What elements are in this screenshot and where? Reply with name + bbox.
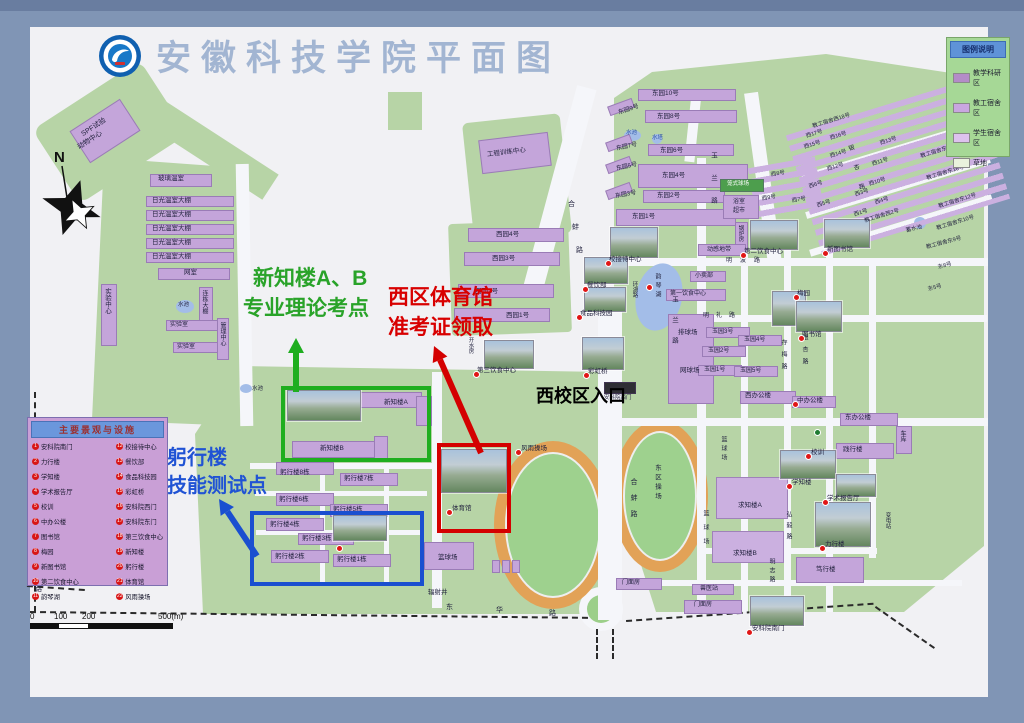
map-label: 学知楼	[792, 480, 812, 487]
photo-thumbnail	[484, 340, 534, 369]
facility-item: 7图书馆	[32, 532, 79, 541]
map-label: 合	[568, 201, 575, 208]
boundary-dashed-road	[612, 629, 614, 659]
poi-marker	[792, 401, 799, 408]
facility-label: 第三饮食中心	[125, 532, 163, 541]
facility-label: 梅园	[41, 547, 54, 556]
map-label: 东区操场	[653, 464, 660, 502]
map-label: 东园1号	[632, 214, 655, 221]
facility-label: 餐饮部	[125, 457, 144, 466]
map-label: 学术报告厅	[827, 496, 860, 503]
facility-number-badge: 16	[116, 503, 123, 510]
map-label: 门面房	[622, 580, 640, 586]
facility-item: 16安科院西门	[116, 502, 163, 511]
poi-marker	[819, 545, 826, 552]
facility-label: 第二饮食中心	[41, 577, 79, 586]
map-title-bar: 安徽科技学院平面图	[98, 30, 561, 81]
map-label: 存梅路	[780, 339, 786, 375]
poi-marker	[814, 429, 821, 436]
facilities-title: 主要景观与设施	[31, 421, 164, 438]
map-label: 网球场	[680, 368, 700, 375]
facility-number-badge: 4	[32, 488, 39, 495]
facility-number-badge: 9	[32, 563, 39, 570]
facility-label: 安科院西门	[125, 502, 156, 511]
scale-bar: 0 100 200 500(m)	[30, 612, 173, 629]
scale-tick-end: 500(m)	[158, 612, 183, 621]
legend-label: 教学科研区	[973, 68, 1006, 88]
map-label: 校接待中心	[609, 257, 642, 264]
facility-item: 5校训	[32, 502, 79, 511]
map-label: 东园10号	[652, 91, 679, 98]
road	[620, 418, 988, 426]
facility-item: 13餐饮部	[116, 457, 163, 466]
map-label: 餐饮部	[587, 283, 607, 290]
map-label: 路	[576, 247, 583, 254]
facility-number-badge: 11	[32, 593, 39, 600]
map-label: 玉园1号	[704, 367, 725, 373]
poi-marker	[583, 372, 590, 379]
map-label: 第二饮食中心	[744, 249, 783, 256]
annotation-blue-line1: 躬行楼	[167, 444, 267, 472]
poi-marker	[646, 284, 653, 291]
map-label: 第一饮食中心	[670, 291, 706, 297]
page-title: 安徽科技学院平面图	[156, 30, 561, 81]
road	[620, 258, 988, 266]
facility-label: 风雨操场	[125, 592, 150, 601]
map-label: 日光温室大棚	[152, 254, 191, 261]
legend-swatch	[953, 103, 970, 113]
poi-marker	[746, 629, 753, 636]
map-label: 小卖部	[695, 273, 713, 279]
facility-item: 19新知楼	[116, 547, 163, 556]
map-label: 锅炉房	[737, 225, 743, 242]
map-label: 明志路	[768, 558, 774, 585]
map-label: 日光温室大棚	[152, 198, 191, 205]
university-logo	[98, 34, 142, 78]
facility-number-badge: 13	[116, 458, 123, 465]
legend-swatch	[953, 158, 970, 168]
photo-thumbnail	[796, 301, 842, 332]
facility-item: 10第二饮食中心	[32, 577, 79, 586]
gongxing-highlight-box	[250, 511, 424, 586]
map-label: 门面房	[694, 602, 712, 608]
map-label: 中办公楼	[797, 398, 823, 405]
map-label: 水池	[178, 303, 189, 309]
legend-item: 教工宿舍区	[950, 98, 1006, 118]
annotation-green-line2: 专业理论考点	[243, 294, 369, 324]
map-label: 连栋大棚	[201, 290, 207, 314]
facility-item: 17安科院东门	[116, 517, 163, 526]
facility-number-badge: 1	[32, 443, 39, 450]
legend-label: 学生宿舍区	[973, 128, 1006, 148]
facility-item: 3学知楼	[32, 472, 79, 481]
map-label: 风雨操场	[521, 446, 547, 453]
map-label: 日光温室大棚	[152, 226, 191, 233]
poi-marker	[822, 250, 829, 257]
map-label: 第三饮食中心	[477, 368, 516, 375]
map-label: 玉园3号	[712, 329, 733, 335]
facility-number-badge: 22	[116, 593, 123, 600]
map-label: 明礼路	[703, 313, 742, 319]
map-label: 合蚌路	[630, 478, 637, 526]
map-label: 兽医站	[700, 586, 718, 592]
poi-marker	[576, 314, 583, 321]
poi-marker	[605, 260, 612, 267]
map-label: 安科院南门	[752, 626, 785, 633]
svg-text:N: N	[54, 149, 65, 166]
facility-item: 1安科院南门	[32, 442, 79, 451]
map-label: 环湖路	[631, 281, 637, 298]
facility-label: 图书馆	[41, 532, 60, 541]
photo-thumbnail	[750, 220, 798, 250]
facility-item: 18第三饮食中心	[116, 532, 163, 541]
facility-item: 4学术报告厅	[32, 487, 79, 496]
facility-item: 11韵琴湖	[32, 592, 79, 601]
map-label: 水池	[252, 387, 263, 393]
facility-item: 21体育馆	[116, 577, 163, 586]
facility-item: 20躬行楼	[116, 562, 163, 571]
running-track	[494, 441, 612, 609]
building	[502, 560, 510, 573]
map-label: 动感地带	[707, 247, 731, 253]
facility-item: 6中办公楼	[32, 517, 79, 526]
facility-number-badge: 19	[116, 548, 123, 555]
facility-item: 2力行楼	[32, 457, 79, 466]
map-label: 玉兰路	[670, 296, 677, 358]
facility-label: 安科院南门	[41, 442, 72, 451]
map-label: 躬行楼6栋	[279, 497, 309, 504]
map-legend: 图例说明 教学科研区教工宿舍区学生宿舍区草地	[946, 37, 1010, 157]
facility-label: 新知楼	[125, 547, 144, 556]
map-label: 东园8号	[657, 114, 680, 121]
facility-item: 9新图书馆	[32, 562, 79, 571]
map-label: 日光温室大棚	[152, 240, 191, 247]
facility-item: 12校接待中心	[116, 442, 163, 451]
map-label: 躬行楼7栋	[344, 476, 374, 483]
map-label: 路	[549, 610, 556, 617]
facility-number-badge: 5	[32, 503, 39, 510]
building	[684, 600, 742, 614]
map-label: 求知楼B	[733, 551, 757, 558]
map-label: 东园2号	[657, 193, 680, 200]
map-label: 东园6号	[660, 148, 683, 155]
legend-label: 草地	[973, 158, 987, 168]
annotation-blue: 躬行楼 技能测试点	[167, 444, 267, 500]
facility-label: 韵琴湖	[41, 592, 60, 601]
map-label: 新图书馆	[827, 247, 853, 254]
facility-item: 8梅园	[32, 547, 79, 556]
map-label: 韵琴湖	[654, 273, 660, 300]
facility-number-badge: 6	[32, 518, 39, 525]
facilities-left-column: 1安科院南门2力行楼3学知楼4学术报告厅5校训6中办公楼7图书馆8梅园9新图书馆…	[32, 442, 79, 601]
map-label: 西办公楼	[745, 393, 771, 400]
facility-label: 体育馆	[125, 577, 144, 586]
map-label: 笃行楼	[816, 567, 836, 574]
annotation-green-line1: 新知楼A、B	[243, 264, 369, 294]
map-label: 华	[496, 607, 503, 614]
map-label: 水池	[626, 131, 637, 137]
building	[716, 477, 788, 519]
boundary-dashed-road	[875, 606, 935, 649]
map-label: 实验室	[170, 322, 188, 328]
map-label: 玉园2号	[708, 348, 729, 354]
map-label: 超市	[733, 208, 745, 214]
map-label: 实验中心	[103, 288, 110, 314]
map-label: 玉园5号	[740, 368, 761, 374]
compass-rose: N	[18, 146, 108, 246]
poi-marker	[798, 335, 805, 342]
map-label: 明波路	[726, 258, 768, 264]
scale-tick-200: 200	[82, 612, 95, 621]
facility-number-badge: 3	[32, 473, 39, 480]
map-label: 变电站	[884, 512, 890, 529]
poi-marker	[786, 483, 793, 490]
poi-marker	[473, 371, 480, 378]
map-label: 篮球场	[702, 510, 708, 552]
map-label: 车库	[899, 430, 905, 442]
legend-title: 图例说明	[950, 41, 1006, 58]
map-label: 西园4号	[496, 232, 519, 239]
boundary-dashed-road	[596, 629, 598, 659]
map-label: 西园3号	[492, 256, 515, 263]
facility-number-badge: 12	[116, 443, 123, 450]
poi-marker	[805, 453, 812, 460]
photo-thumbnail	[584, 287, 626, 312]
annotation-red-line1: 西区体育馆	[388, 283, 493, 313]
facility-number-badge: 8	[32, 548, 39, 555]
map-label: 日光温室大棚	[152, 212, 191, 219]
photo-thumbnail	[836, 474, 876, 497]
photo-thumbnail	[750, 596, 804, 626]
map-label: 网室	[184, 270, 197, 277]
facility-item: 14食品科技园	[116, 472, 163, 481]
scale-tick-100: 100	[54, 612, 67, 621]
legend-item: 学生宿舍区	[950, 128, 1006, 148]
map-label: 浴室	[733, 199, 745, 205]
map-label: 玉园4号	[744, 337, 765, 343]
facility-label: 校接待中心	[125, 442, 156, 451]
map-label: 排球场	[678, 330, 698, 337]
facility-number-badge: 2	[32, 458, 39, 465]
xinzhi-highlight-box	[281, 386, 431, 462]
map-label: 篮球场	[720, 436, 726, 463]
map-label: 管理中心	[219, 322, 225, 346]
facilities-right-column: 12校接待中心13餐饮部14食品科技园15彩虹桥16安科院西门17安科院东门18…	[116, 442, 163, 601]
poi-marker	[793, 294, 800, 301]
scale-tick-0: 0	[30, 612, 34, 621]
photo-thumbnail	[610, 227, 658, 258]
facility-number-badge: 20	[116, 563, 123, 570]
facility-number-badge: 17	[116, 518, 123, 525]
map-label: 玉兰路	[709, 152, 716, 220]
map-label: 实验室	[177, 344, 195, 350]
facility-label: 安科院东门	[125, 517, 156, 526]
building	[512, 560, 520, 573]
road	[622, 580, 962, 586]
annotation-entrance: 西校区入口	[536, 382, 626, 408]
map-label: 践行楼	[843, 447, 863, 454]
facility-label: 学术报告厅	[41, 487, 72, 496]
photo-thumbnail	[582, 337, 624, 370]
water-feature	[240, 384, 252, 393]
map-label: 东	[446, 604, 453, 611]
map-label: 东办公楼	[845, 415, 871, 422]
map-label: 力行楼	[825, 542, 845, 549]
annotation-green: 新知楼A、B 专业理论考点	[243, 264, 369, 324]
map-label: 蚌	[572, 224, 579, 231]
facility-number-badge: 10	[32, 578, 39, 585]
legend-label: 教工宿舍区	[973, 98, 1006, 118]
annotation-red: 西区体育馆 准考证领取	[388, 283, 493, 343]
poi-marker	[582, 286, 589, 293]
map-label: 西园1号	[506, 313, 529, 320]
facility-label: 食品科技园	[125, 472, 156, 481]
facility-label: 校训	[41, 502, 54, 511]
gym-highlight-box	[437, 443, 511, 533]
legend-item: 教学科研区	[950, 68, 1006, 88]
map-label: 彩虹桥	[588, 369, 608, 376]
facility-item: 15彩虹桥	[116, 487, 163, 496]
map-label: 玻璃温室	[158, 176, 184, 183]
map-label: 辐射井	[428, 590, 448, 597]
map-label: 弘毅路	[785, 511, 791, 544]
map-label: 躬行楼8栋	[280, 470, 310, 477]
legend-items: 教学科研区教工宿舍区学生宿舍区草地	[950, 68, 1006, 168]
map-label: 食品科技园	[580, 311, 613, 318]
facility-number-badge: 14	[116, 473, 123, 480]
facility-item: 22风雨操场	[116, 592, 163, 601]
map-label: 笼式球场	[727, 182, 749, 188]
poi-marker	[740, 252, 747, 259]
photo-thumbnail	[824, 219, 870, 248]
scale-bar-strip	[30, 623, 173, 629]
map-label: 求知楼A	[738, 503, 762, 510]
map-label: 东园4号	[662, 173, 685, 180]
facility-number-badge: 18	[116, 533, 123, 540]
map-label: 水塔	[652, 136, 663, 142]
facility-number-badge: 15	[116, 488, 123, 495]
facility-number-badge: 21	[116, 578, 123, 585]
facility-label: 中办公楼	[41, 517, 66, 526]
annotation-blue-line2: 技能测试点	[167, 472, 267, 500]
poi-marker	[822, 499, 829, 506]
legend-swatch	[953, 73, 970, 83]
legend-item: 草地	[950, 158, 1006, 168]
page-background: SPF试验动物中心玻璃温室日光温室大棚日光温室大棚日光温室大棚日光温室大棚日光温…	[0, 0, 1024, 723]
map-label: 校训	[811, 450, 824, 457]
poi-marker	[515, 449, 522, 456]
facility-label: 学知楼	[41, 472, 60, 481]
building	[492, 560, 500, 573]
facility-number-badge: 7	[32, 533, 39, 540]
facilities-panel: 主要景观与设施 1安科院南门2力行楼3学知楼4学术报告厅5校训6中办公楼7图书馆…	[27, 417, 168, 586]
map-label: 篮球场	[438, 555, 458, 562]
facility-label: 躬行楼	[125, 562, 144, 571]
legend-swatch	[953, 133, 970, 143]
facility-label: 力行楼	[41, 457, 60, 466]
facility-label: 彩虹桥	[125, 487, 144, 496]
small-pad	[388, 92, 422, 130]
facility-label: 新图书馆	[41, 562, 66, 571]
annotation-red-line2: 准考证领取	[388, 313, 493, 343]
